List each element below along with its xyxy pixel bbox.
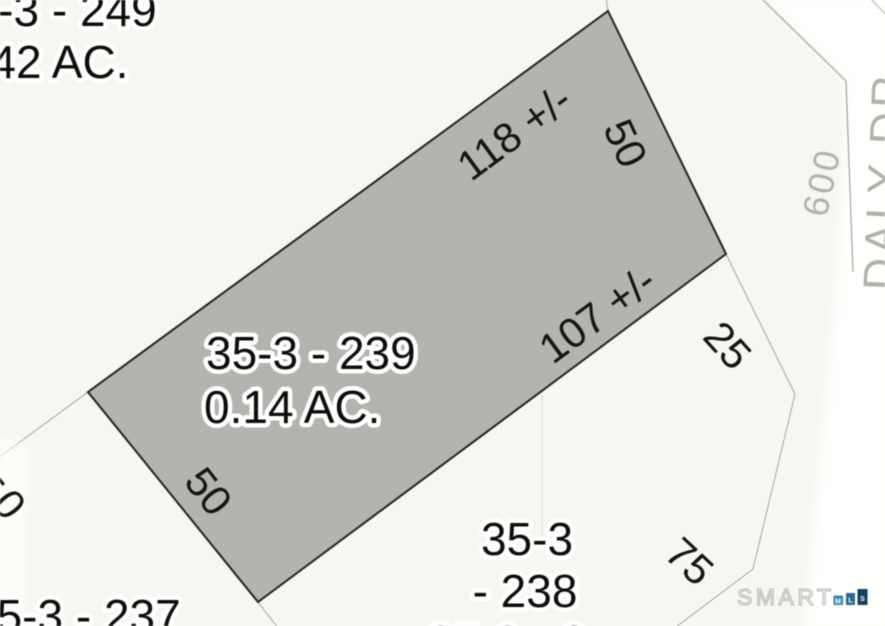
svg-text:0.14 AC.: 0.14 AC. [204,381,380,433]
svg-text:- 238: - 238 [473,565,578,617]
svg-text:M: M [835,599,841,606]
svg-text:SMART: SMART [737,584,835,610]
svg-text:0.42 AC.: 0.42 AC. [0,36,128,88]
svg-text:35-3 - 249: 35-3 - 249 [0,0,157,36]
svg-text:35-3: 35-3 [481,513,573,565]
svg-text:35-3 - 237: 35-3 - 237 [0,590,181,626]
svg-text:35-3 - 2: 35-3 - 2 [428,616,587,626]
svg-text:S: S [860,596,865,603]
svg-text:L: L [848,598,853,605]
svg-text:35-3 - 239: 35-3 - 239 [206,327,416,379]
